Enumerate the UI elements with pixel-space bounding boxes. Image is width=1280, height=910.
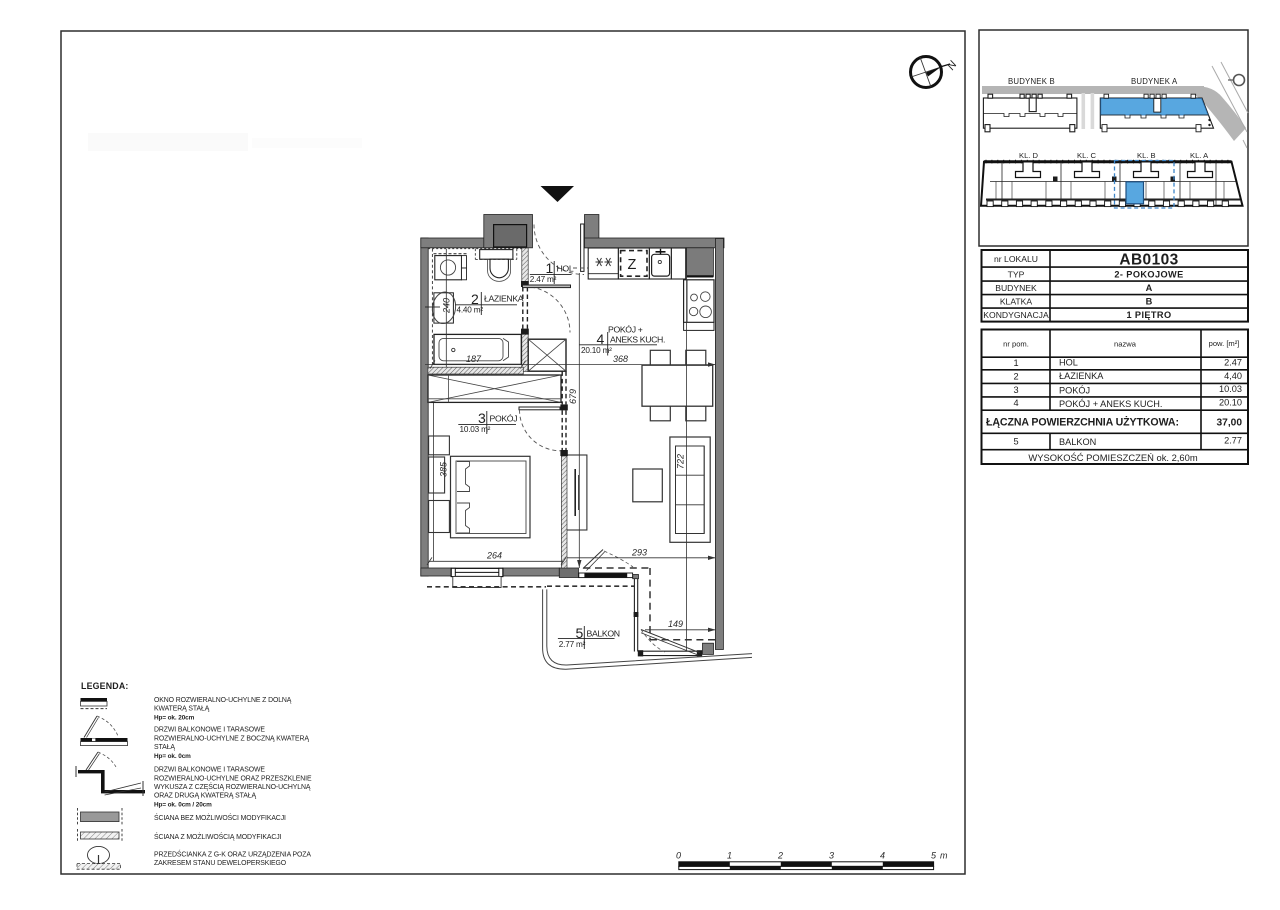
svg-text:Hp= ok. 0cm / 20cm: Hp= ok. 0cm / 20cm — [154, 801, 212, 808]
svg-text:ŚCIANA Z MOŻLIWOŚCIĄ MODYFIKAC: ŚCIANA Z MOŻLIWOŚCIĄ MODYFIKACJI — [154, 832, 282, 841]
svg-text:240: 240 — [442, 298, 452, 314]
svg-text:3: 3 — [478, 410, 486, 426]
svg-text:722: 722 — [676, 454, 686, 469]
svg-text:HOL: HOL — [1059, 357, 1078, 367]
svg-text:BALKON: BALKON — [587, 629, 620, 639]
svg-text:POKÓJ: POKÓJ — [490, 414, 518, 424]
svg-text:POKÓJ + ANEKS KUCH.: POKÓJ + ANEKS KUCH. — [1059, 399, 1162, 409]
svg-text:TYP: TYP — [1008, 269, 1025, 279]
svg-text:1: 1 — [727, 851, 732, 861]
svg-text:20.10 m²: 20.10 m² — [581, 346, 612, 355]
svg-text:KL. D: KL. D — [1019, 151, 1039, 160]
svg-text:0: 0 — [676, 851, 681, 861]
svg-text:BUDYNEK: BUDYNEK — [995, 283, 1037, 293]
svg-text:KL. C: KL. C — [1077, 151, 1097, 160]
svg-text:ŁĄCZNA POWIERZCHNIA UŻYTKOWA:: ŁĄCZNA POWIERZCHNIA UŻYTKOWA: — [986, 416, 1179, 429]
svg-text:BUDYNEK A: BUDYNEK A — [1131, 77, 1178, 86]
svg-text:nr LOKALU: nr LOKALU — [994, 254, 1038, 264]
svg-text:POKÓJ +: POKÓJ + — [608, 325, 643, 335]
svg-text:2.77 m²: 2.77 m² — [559, 640, 586, 649]
svg-text:149: 149 — [668, 619, 683, 629]
svg-text:HOL: HOL — [557, 264, 574, 274]
svg-text:2: 2 — [1013, 372, 1018, 382]
svg-text:KL. A: KL. A — [1190, 151, 1209, 160]
svg-text:293: 293 — [631, 547, 647, 557]
svg-text:ROZWIERALNO-UCHYLNE ORAZ PRZES: ROZWIERALNO-UCHYLNE ORAZ PRZESZKLENIE — [154, 775, 312, 782]
svg-text:LEGENDA:: LEGENDA: — [81, 681, 129, 691]
svg-text:3: 3 — [1013, 385, 1018, 395]
svg-text:10.03 m²: 10.03 m² — [460, 425, 491, 434]
svg-text:4: 4 — [880, 851, 885, 861]
svg-text:2- POKOJOWE: 2- POKOJOWE — [1114, 270, 1183, 280]
svg-text:pow. [m²]: pow. [m²] — [1209, 339, 1240, 348]
svg-text:4.40 m²: 4.40 m² — [457, 306, 484, 315]
svg-text:KLATKA: KLATKA — [1000, 297, 1033, 307]
svg-text:AB0103: AB0103 — [1119, 251, 1178, 268]
svg-text:3: 3 — [829, 851, 834, 861]
svg-text:ROZWIERALNO-UCHYLNE Z BOCZNĄ K: ROZWIERALNO-UCHYLNE Z BOCZNĄ KWATERĄ — [154, 735, 309, 742]
svg-text:10.03: 10.03 — [1219, 384, 1242, 394]
svg-text:385: 385 — [439, 461, 449, 477]
svg-text:4: 4 — [1013, 398, 1018, 408]
svg-text:ŚCIANA BEZ MOŻLIWOŚCI MODYFIKA: ŚCIANA BEZ MOŻLIWOŚCI MODYFIKACJI — [154, 813, 286, 822]
svg-text:KWATERĄ STAŁĄ: KWATERĄ STAŁĄ — [154, 706, 210, 713]
svg-text:B: B — [1146, 297, 1153, 307]
svg-text:A: A — [1146, 283, 1153, 293]
svg-text:KONDYGNACJA: KONDYGNACJA — [983, 310, 1049, 320]
svg-text:KL. B: KL. B — [1137, 151, 1156, 160]
svg-text:WYKUSZA Z CZĘŚCIĄ ROZWIERALNO-: WYKUSZA Z CZĘŚCIĄ ROZWIERALNO-UCHYLNĄ — [154, 782, 311, 791]
svg-text:ŁAZIENKA: ŁAZIENKA — [484, 294, 524, 304]
svg-text:2.47: 2.47 — [1224, 357, 1242, 367]
svg-text:37,00: 37,00 — [1217, 418, 1243, 429]
svg-text:OKNO ROZWIERALNO-UCHYLNE Z DOL: OKNO ROZWIERALNO-UCHYLNE Z DOLNĄ — [154, 697, 292, 704]
svg-text:WYSOKOŚĆ POMIESZCZEŃ ok. 2,60m: WYSOKOŚĆ POMIESZCZEŃ ok. 2,60m — [1028, 452, 1197, 463]
svg-text:20.10: 20.10 — [1219, 397, 1242, 407]
svg-text:ANEKS KUCH.: ANEKS KUCH. — [610, 335, 665, 345]
svg-text:nazwa: nazwa — [1114, 340, 1137, 349]
svg-text:Z: Z — [628, 257, 637, 273]
svg-text:STAŁĄ: STAŁĄ — [154, 744, 175, 751]
svg-text:2.47 m²: 2.47 m² — [530, 275, 557, 284]
svg-text:5: 5 — [1013, 437, 1018, 447]
svg-text:679: 679 — [568, 389, 578, 404]
svg-text:ORAZ DRUGĄ KWATERĄ STAŁĄ: ORAZ DRUGĄ KWATERĄ STAŁĄ — [154, 793, 256, 800]
svg-text:DRZWI BALKONOWE I TARASOWE: DRZWI BALKONOWE I TARASOWE — [154, 727, 265, 734]
svg-text:ŁAZIENKA: ŁAZIENKA — [1059, 371, 1104, 381]
svg-text:POKÓJ: POKÓJ — [1059, 385, 1090, 395]
svg-text:Hp= ok. 20cm: Hp= ok. 20cm — [154, 714, 195, 721]
svg-text:nr pom.: nr pom. — [1003, 340, 1029, 349]
svg-text:2.77: 2.77 — [1224, 436, 1242, 446]
svg-text:1: 1 — [1013, 358, 1018, 368]
svg-text:187: 187 — [466, 354, 482, 364]
svg-text:1 PIĘTRO: 1 PIĘTRO — [1126, 310, 1171, 320]
svg-text:BUDYNEK B: BUDYNEK B — [1008, 77, 1055, 86]
svg-text:4,40: 4,40 — [1224, 371, 1242, 381]
svg-text:264: 264 — [486, 551, 502, 561]
svg-text:2: 2 — [777, 851, 783, 861]
svg-text:PRZEDŚCIANKA Z G-K ORAZ URZĄDZ: PRZEDŚCIANKA Z G-K ORAZ URZĄDZENIA POZA — [154, 849, 311, 858]
svg-text:m: m — [940, 851, 948, 861]
svg-text:DRZWI BALKONOWE I TARASOWE: DRZWI BALKONOWE I TARASOWE — [154, 767, 265, 774]
svg-text:1: 1 — [546, 260, 554, 276]
svg-text:Hp= ok. 0cm: Hp= ok. 0cm — [154, 753, 191, 760]
svg-text:368: 368 — [613, 354, 628, 364]
svg-text:ZAKRESEM STANU DEWELOPERSKIEGO: ZAKRESEM STANU DEWELOPERSKIEGO — [154, 860, 287, 867]
svg-text:BALKON: BALKON — [1059, 437, 1096, 447]
